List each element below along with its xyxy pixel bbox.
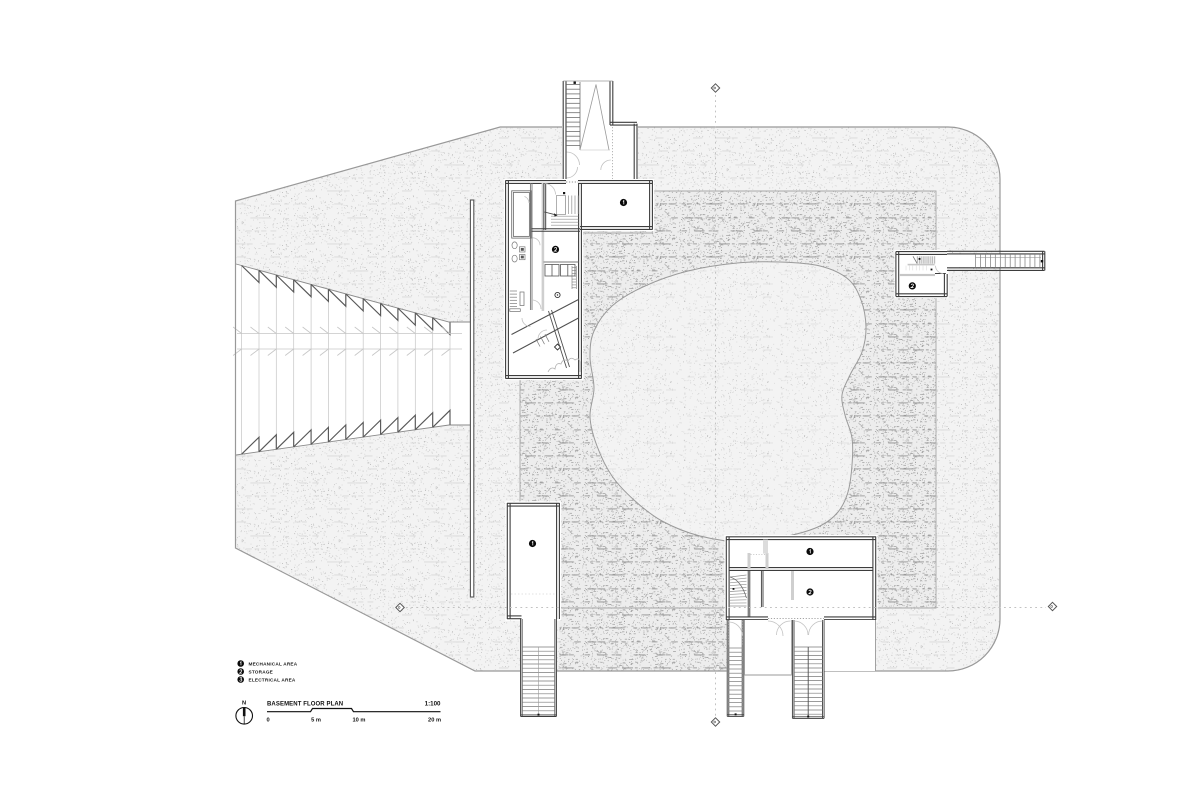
- svg-text:10 m: 10 m: [353, 718, 366, 724]
- svg-text:20 m: 20 m: [428, 718, 441, 724]
- svg-text:1:100: 1:100: [425, 701, 441, 708]
- svg-text:0: 0: [267, 718, 270, 724]
- svg-text:N: N: [242, 701, 246, 707]
- svg-text:STORAGE: STORAGE: [249, 670, 274, 675]
- svg-text:MECHANICAL AREA: MECHANICAL AREA: [249, 662, 298, 667]
- svg-text:BASEMENT FLOOR PLAN: BASEMENT FLOOR PLAN: [267, 702, 343, 708]
- svg-text:ELECTRICAL AREA: ELECTRICAL AREA: [249, 678, 296, 683]
- svg-text:5 m: 5 m: [311, 718, 321, 724]
